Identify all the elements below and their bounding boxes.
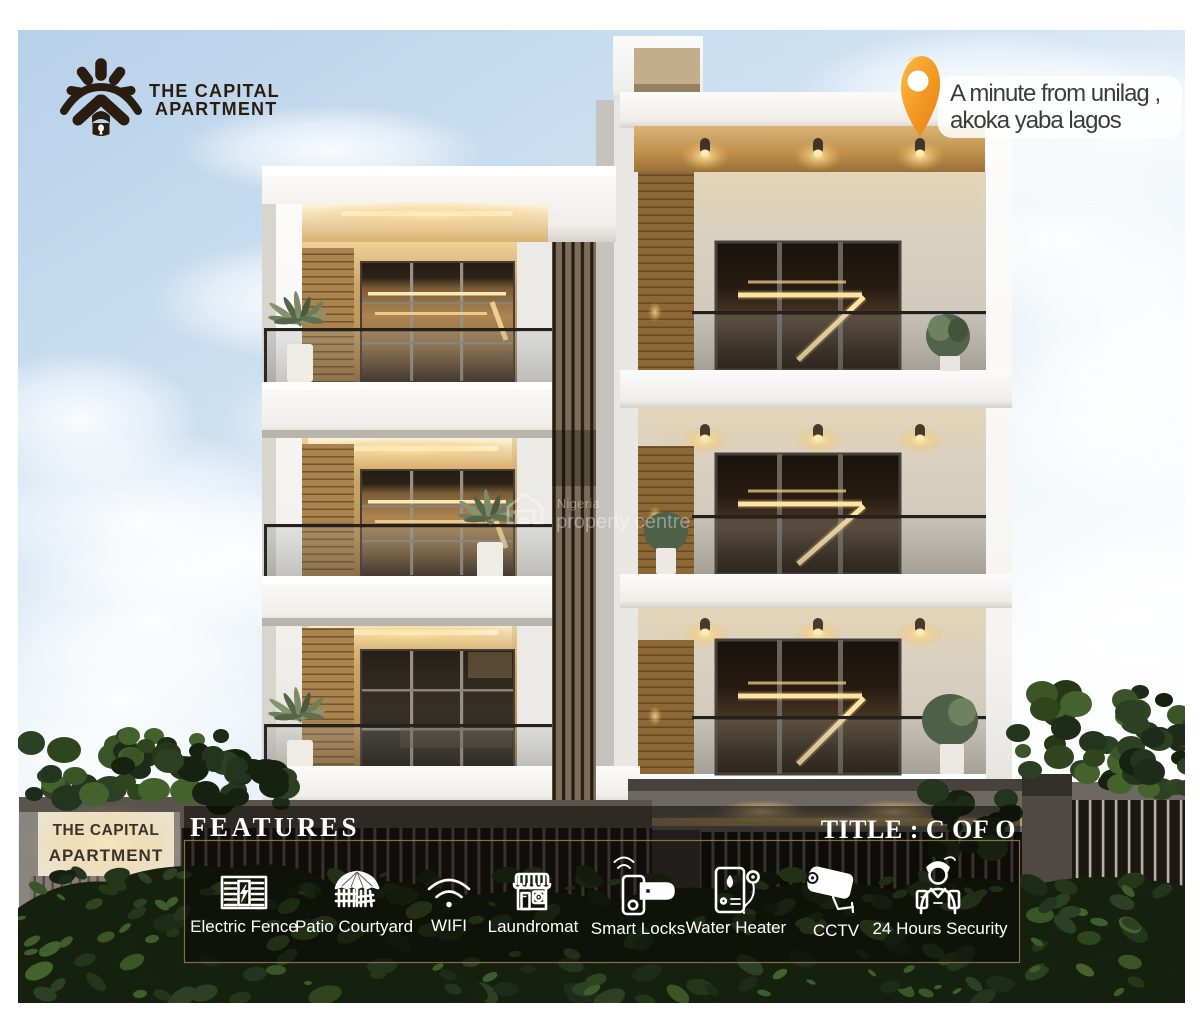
svg-text:THE CAPITAL: THE CAPITAL	[149, 81, 280, 101]
svg-text:Patio Courtyard: Patio Courtyard	[295, 917, 413, 936]
svg-text:TITLE : C OF O: TITLE : C OF O	[821, 815, 1016, 844]
svg-text:property centre: property centre	[556, 511, 691, 533]
svg-text:APARTMENT: APARTMENT	[49, 846, 163, 865]
svg-text:Laundromat: Laundromat	[488, 917, 579, 936]
svg-text:THE CAPITAL: THE CAPITAL	[53, 822, 160, 839]
svg-text:Nigeria: Nigeria	[557, 497, 600, 511]
svg-text:Water Heater: Water Heater	[686, 918, 787, 937]
svg-text:Smart Locks: Smart Locks	[591, 919, 685, 938]
svg-text:Electric Fence: Electric Fence	[190, 917, 298, 936]
svg-text:WIFI: WIFI	[431, 916, 467, 935]
svg-text:A minute from unilag ,: A minute from unilag ,	[950, 80, 1160, 107]
svg-text:APARTMENT: APARTMENT	[155, 99, 277, 119]
svg-text:CCTV: CCTV	[813, 921, 860, 940]
svg-text:24 Hours Security: 24 Hours Security	[872, 919, 1008, 938]
svg-text:FEATURES: FEATURES	[190, 812, 360, 842]
svg-text:akoka yaba lagos: akoka yaba lagos	[950, 107, 1122, 134]
